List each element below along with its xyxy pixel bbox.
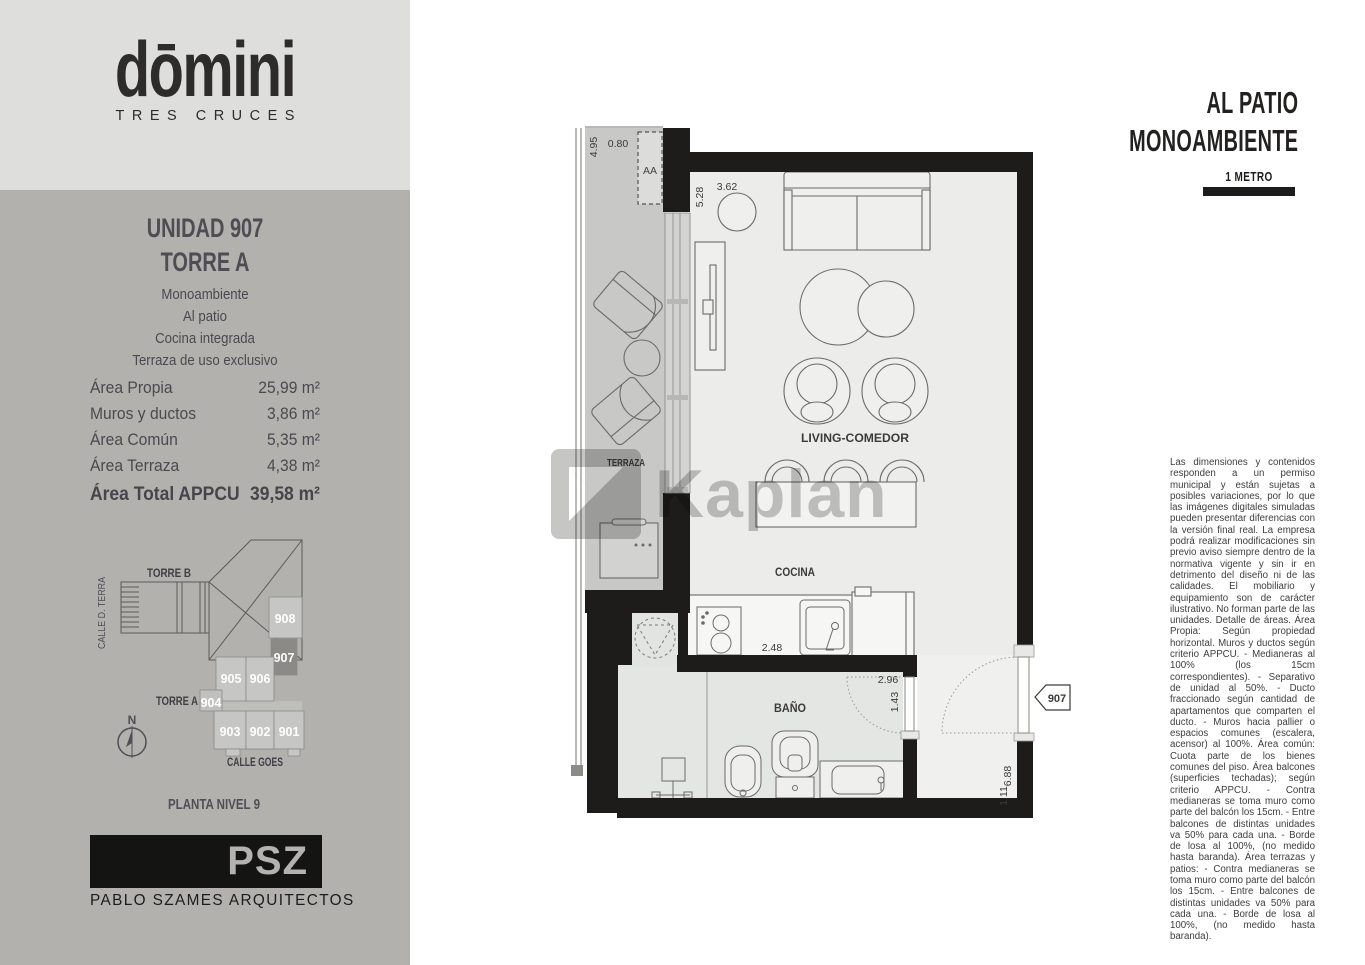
area-label: Área Propia bbox=[90, 378, 173, 404]
feature-item: Monoambiente bbox=[25, 286, 386, 303]
coffee-table-small bbox=[858, 281, 914, 337]
bano-label: BAÑO bbox=[774, 702, 806, 715]
site-unit-907: 907 bbox=[274, 651, 295, 665]
living-label: LIVING-COMEDOR bbox=[801, 431, 909, 445]
armchair bbox=[862, 358, 928, 424]
area-row: Área Común 5,35 m² bbox=[90, 430, 320, 456]
dim-living-w: 3.62 bbox=[717, 181, 738, 193]
bidet bbox=[725, 746, 761, 797]
cocina-label: COCINA bbox=[775, 567, 815, 579]
sheet-title-line2: MONOAMBIENTE bbox=[1129, 122, 1298, 160]
street-bottom-label: CALLE GOES bbox=[227, 757, 283, 769]
psz-logo: PSZ bbox=[90, 835, 322, 888]
area-row: Muros y ductos 3,86 m² bbox=[90, 404, 320, 430]
unit-tag-label: 907 bbox=[1048, 693, 1066, 705]
site-unit-906: 906 bbox=[250, 672, 271, 686]
architect-name: PABLO SZAMES ARQUITECTOS bbox=[90, 892, 320, 910]
area-total-value: 39,58 m² bbox=[250, 484, 320, 506]
tv-unit bbox=[695, 242, 725, 370]
dim-entry-h: 6.88 bbox=[1002, 766, 1014, 787]
sheet-title: AL PATIO MONOAMBIENTE bbox=[1034, 84, 1298, 160]
brand-logo-block: dōmini TRES CRUCES bbox=[0, 0, 410, 190]
site-unit-908: 908 bbox=[275, 612, 296, 626]
scale-block: 1 METRO bbox=[1203, 170, 1295, 196]
area-label: Área Terraza bbox=[90, 456, 179, 482]
dim-bano-w: 2.96 bbox=[878, 674, 899, 686]
sheet-title-line1: AL PATIO bbox=[1129, 84, 1298, 122]
area-total-row: Área Total APPCU 39,58 m² bbox=[90, 484, 320, 506]
street-left-label: CALLE D. TERRA bbox=[97, 577, 108, 649]
unit-title: UNIDAD 907 bbox=[53, 213, 356, 244]
compass: N bbox=[118, 713, 146, 758]
brand-logo: dōmini bbox=[53, 30, 356, 108]
site-plan-svg: 908 907 905 906 904 903 902 901 TORRE B … bbox=[58, 520, 410, 820]
area-total-label: Área Total APPCU bbox=[90, 484, 240, 506]
dim-terraza-h: 4.95 bbox=[588, 137, 600, 158]
duct-floor bbox=[632, 612, 678, 665]
tower-title: TORRE A bbox=[53, 247, 356, 278]
site-unit-904: 904 bbox=[201, 696, 222, 710]
unit-door-tag: 907 bbox=[1035, 685, 1070, 710]
site-unit-902: 902 bbox=[250, 725, 271, 739]
feature-item: Terraza de uso exclusivo bbox=[25, 352, 386, 369]
ac-unit-label: AA bbox=[643, 165, 657, 177]
area-row: Área Terraza 4,38 m² bbox=[90, 456, 320, 482]
compass-n-label: N bbox=[128, 713, 137, 727]
scale-bar bbox=[1203, 187, 1295, 196]
watermark-logo-icon bbox=[551, 449, 641, 539]
area-label: Área Común bbox=[90, 430, 178, 456]
sofa bbox=[784, 172, 930, 250]
dim-living-h: 5.28 bbox=[694, 187, 706, 208]
torre-b-building bbox=[121, 582, 209, 633]
fridge bbox=[852, 587, 914, 658]
scale-label: 1 METRO bbox=[1212, 170, 1286, 184]
area-value: 4,38 m² bbox=[267, 456, 320, 482]
watermark-text: Kaplan bbox=[655, 455, 888, 533]
feature-item: Cocina integrada bbox=[25, 330, 386, 347]
side-table bbox=[718, 193, 756, 231]
torre-a-label: TORRE A bbox=[156, 696, 198, 708]
area-value: 25,99 m² bbox=[258, 378, 320, 404]
legal-disclaimer: Las dimensiones y contenidos responden a… bbox=[1170, 457, 1315, 943]
feature-item: Al patio bbox=[25, 308, 386, 325]
architect-logo-block: PSZ PABLO SZAMES ARQUITECTOS bbox=[90, 835, 322, 910]
dim-entry-w: 1.11 bbox=[998, 786, 1010, 806]
dim-cocina-w: 2.48 bbox=[762, 642, 783, 654]
dim-bano-h: 1.43 bbox=[889, 692, 901, 713]
site-plan-caption: PLANTA NIVEL 9 bbox=[168, 796, 260, 813]
toilet bbox=[772, 731, 818, 798]
site-unit-905: 905 bbox=[221, 672, 242, 686]
site-unit-903: 903 bbox=[220, 725, 241, 739]
torre-b-label: TORRE B bbox=[147, 568, 191, 580]
area-row: Área Propia 25,99 m² bbox=[90, 378, 320, 404]
sidebar: dōmini TRES CRUCES UNIDAD 907 TORRE A Mo… bbox=[0, 0, 410, 965]
armchair bbox=[784, 358, 850, 424]
ac-unit-box: AA bbox=[638, 132, 662, 204]
area-label: Muros y ductos bbox=[90, 404, 196, 430]
vanity-sink bbox=[820, 761, 904, 798]
area-value: 3,86 m² bbox=[267, 404, 320, 430]
areas-table: Área Propia 25,99 m² Muros y ductos 3,86… bbox=[90, 378, 320, 506]
watermark: Kaplan bbox=[551, 449, 888, 539]
area-value: 5,35 m² bbox=[267, 430, 320, 456]
site-unit-901: 901 bbox=[279, 725, 300, 739]
dim-terraza-w: 0.80 bbox=[608, 138, 629, 150]
kitchen-counter bbox=[687, 587, 914, 658]
